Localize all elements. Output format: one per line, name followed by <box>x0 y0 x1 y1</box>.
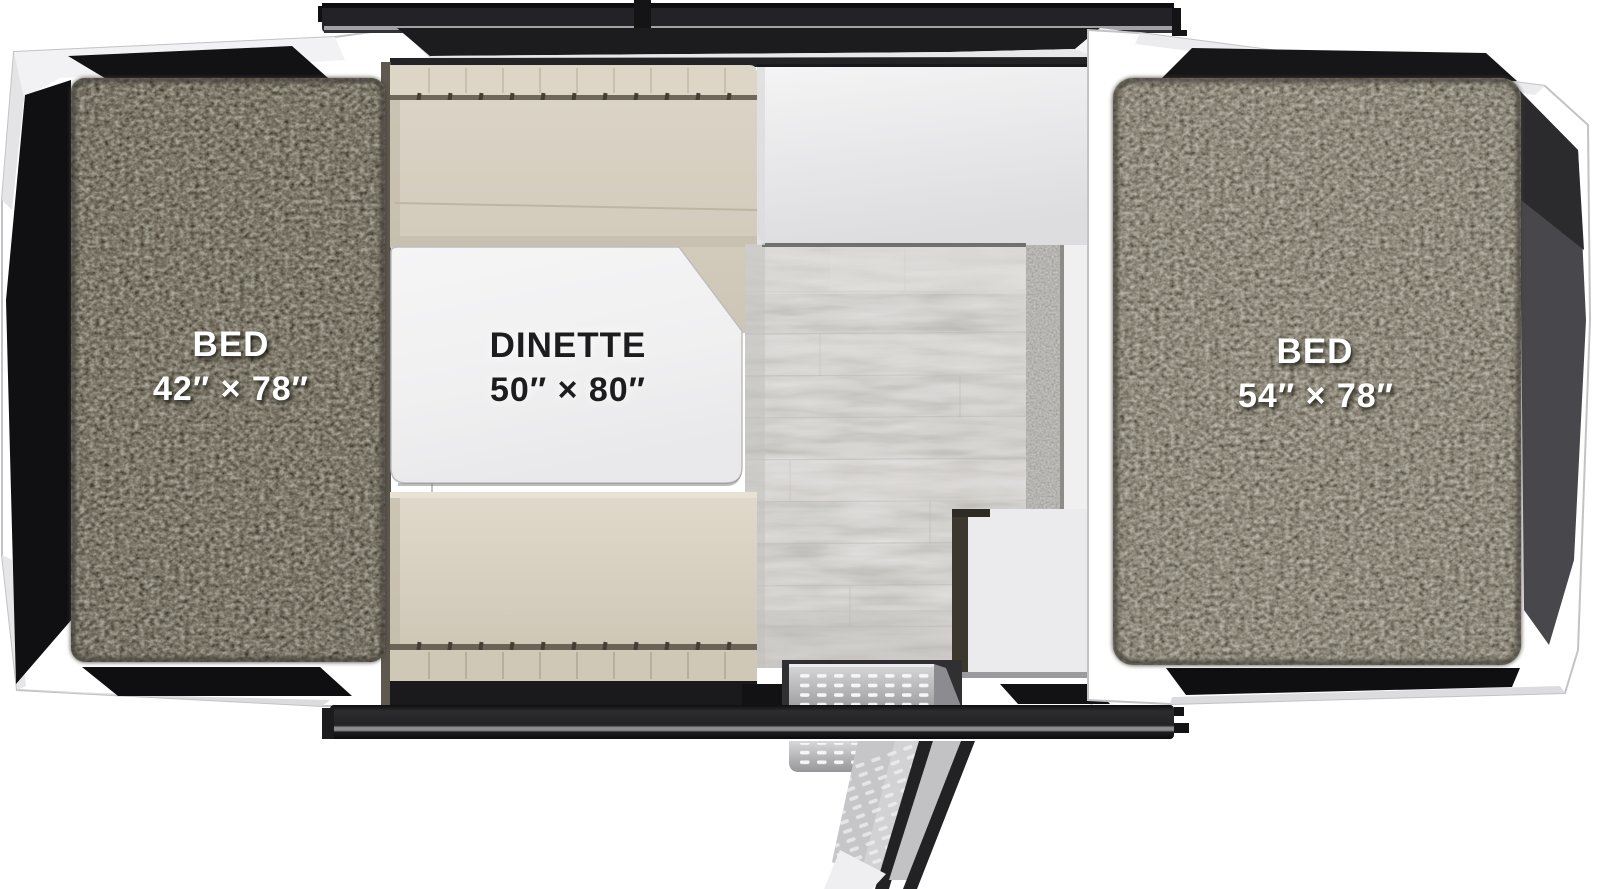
svg-text:BED: BED <box>1277 332 1354 371</box>
svg-text:BED: BED <box>193 325 270 364</box>
svg-text:42″ × 78″: 42″ × 78″ <box>153 370 309 408</box>
svg-text:50″ × 80″: 50″ × 80″ <box>490 371 646 409</box>
svg-text:54″ × 78″: 54″ × 78″ <box>1238 377 1394 415</box>
svg-text:DINETTE: DINETTE <box>490 326 647 365</box>
